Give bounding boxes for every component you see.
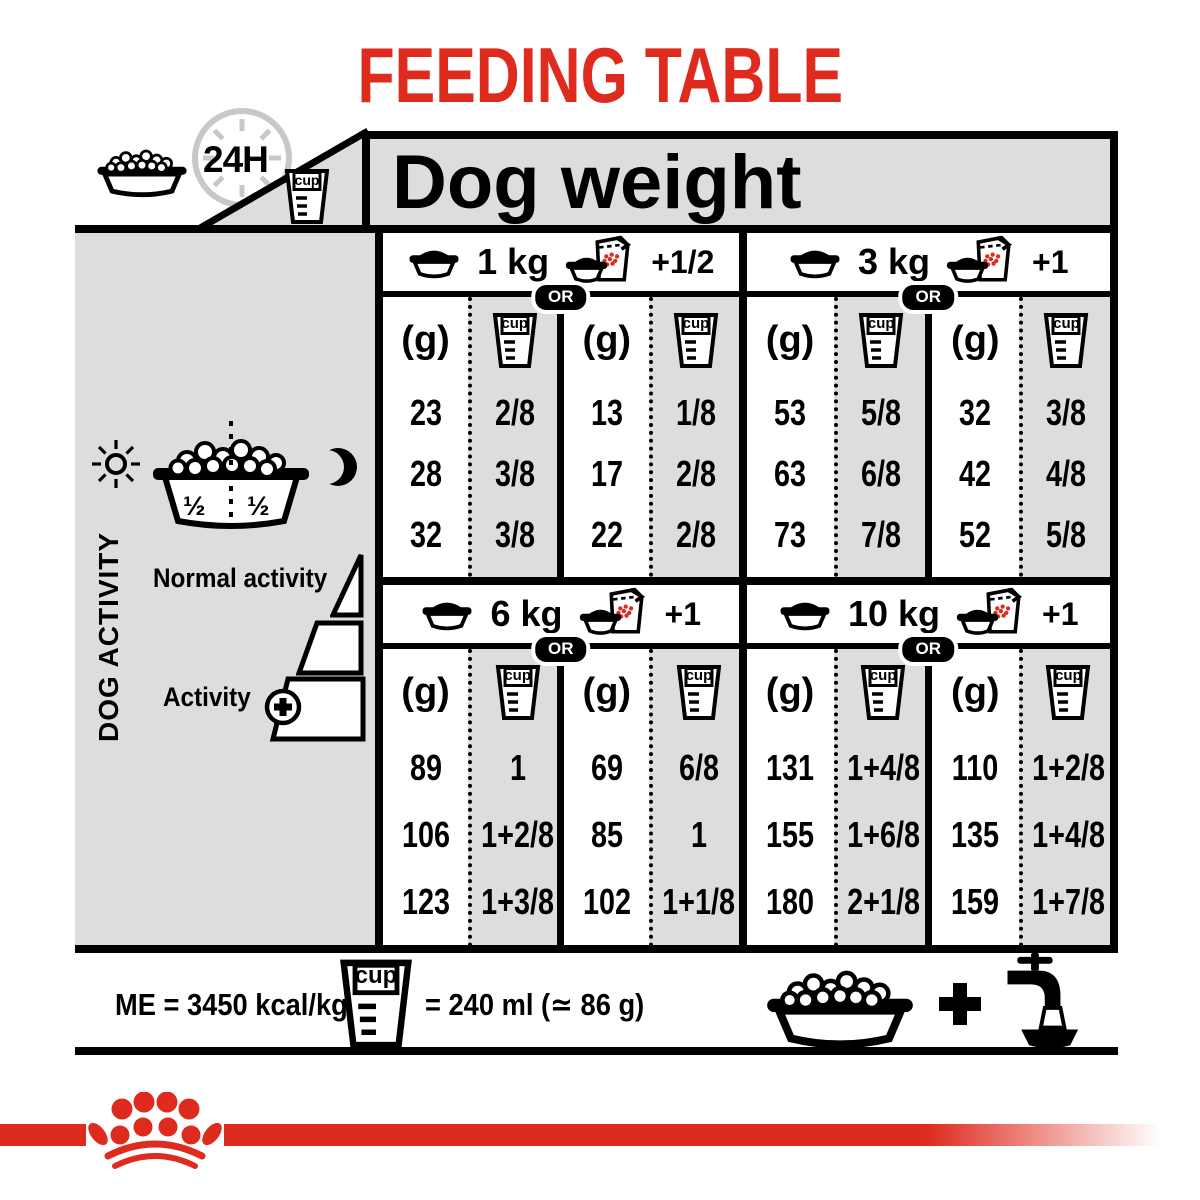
table-cell: 1+2/8 bbox=[1023, 735, 1114, 802]
or-badge: OR bbox=[903, 637, 955, 662]
table-cell: 1/8 bbox=[653, 383, 738, 444]
cup-icon: cup bbox=[1045, 664, 1091, 721]
activity-label: Activity bbox=[163, 682, 251, 713]
dog-weight-title: Dog weight bbox=[392, 139, 802, 226]
table-cell: 89 bbox=[383, 735, 468, 802]
table-cell: 155 bbox=[747, 802, 834, 869]
royal-canin-paw-logo bbox=[84, 1092, 226, 1170]
table-cell: 135 bbox=[932, 802, 1019, 869]
table-cell: 1+1/8 bbox=[653, 868, 744, 935]
grams-header: (g) bbox=[401, 319, 450, 362]
dog-activity-sidebar: ½ ½ DOG ACTIVITY Normal activity Activit… bbox=[75, 233, 375, 945]
or-badge: OR bbox=[903, 285, 955, 310]
or-badge: OR bbox=[535, 637, 587, 662]
grams-header: (g) bbox=[951, 319, 1000, 362]
metabolizable-energy-label: ME = 3450 kcal/kg bbox=[115, 987, 348, 1023]
activity-plus-icon bbox=[262, 686, 304, 728]
table-cell: 2/8 bbox=[653, 504, 738, 565]
table-cell: 1+7/8 bbox=[1023, 868, 1114, 935]
wet-add-label: +1 bbox=[1032, 244, 1068, 281]
dry-bowl-icon bbox=[407, 244, 461, 280]
grams-header: (g) bbox=[583, 319, 632, 362]
table-cell: 73 bbox=[747, 504, 834, 565]
bowl-pouch-icon bbox=[579, 586, 649, 638]
table-cell: 5/8 bbox=[838, 383, 925, 444]
cup-icon: cup bbox=[676, 664, 722, 721]
table-cell: 17 bbox=[564, 444, 649, 505]
grams-header: (g) bbox=[583, 671, 632, 714]
section-10kg: 10 kg +1 OR (g) 131 155 180 cup 1+4/8 bbox=[747, 585, 1111, 947]
section-6kg: 6 kg +1 OR (g) 89 106 123 cup 1 1+2 bbox=[383, 585, 747, 947]
table-cell: 63 bbox=[747, 444, 834, 505]
mixed-feeding-subtable: (g) 69 85 102 cup 6/8 1 1+1/8 bbox=[557, 649, 738, 947]
table-cell: 1+3/8 bbox=[472, 868, 563, 935]
table-cell: 110 bbox=[932, 735, 1019, 802]
cup-icon: cup bbox=[337, 958, 415, 1050]
mixed-feeding-subtable: (g) 13 17 22 cup 1/8 2/8 2/8 bbox=[557, 297, 738, 577]
half-half-bowl-icon bbox=[145, 421, 317, 537]
table-cell: 159 bbox=[932, 868, 1019, 935]
bowl-pouch-icon bbox=[956, 586, 1026, 638]
cup-icon: cup bbox=[284, 168, 330, 225]
table-cell: 106 bbox=[383, 802, 468, 869]
bowl-pouch-icon bbox=[946, 234, 1016, 286]
bowl-pouch-icon bbox=[565, 234, 635, 286]
table-cell: 1+4/8 bbox=[1023, 802, 1114, 869]
table-cell: 3/8 bbox=[472, 504, 557, 565]
grams-header: (g) bbox=[401, 671, 450, 714]
mixed-feeding-subtable: (g) 32 42 52 cup 3/8 4/8 5/8 bbox=[925, 297, 1110, 577]
wet-add-label: +1 bbox=[1042, 596, 1078, 633]
table-cell: 180 bbox=[747, 868, 834, 935]
table-cell: 102 bbox=[564, 868, 649, 935]
moon-icon bbox=[318, 441, 358, 493]
table-cell: 1+2/8 bbox=[472, 802, 563, 869]
weight-label: 6 kg bbox=[490, 593, 562, 635]
table-cell: 5/8 bbox=[1023, 504, 1110, 565]
table-cell: 85 bbox=[564, 802, 649, 869]
table-cell: 13 bbox=[564, 383, 649, 444]
section-3kg-header: 3 kg +1 OR bbox=[747, 233, 1111, 297]
header-wedge bbox=[140, 120, 380, 240]
table-cell: 53 bbox=[747, 383, 834, 444]
footer-info-band: ME = 3450 kcal/kg cup = 240 ml (≃ 86 g) bbox=[75, 945, 1118, 1055]
grams-header: (g) bbox=[951, 671, 1000, 714]
activity-level-1-icon bbox=[330, 552, 364, 618]
activity-level-2-icon bbox=[296, 620, 364, 676]
mixed-feeding-subtable: (g) 110 135 159 cup 1+2/8 1+4/8 1+7/8 bbox=[925, 649, 1110, 947]
table-cell: 7/8 bbox=[838, 504, 925, 565]
table-cell: 42 bbox=[932, 444, 1019, 505]
half-portion-day-label: ½ bbox=[183, 491, 206, 522]
half-portion-night-label: ½ bbox=[247, 491, 270, 522]
plus-icon bbox=[939, 983, 981, 1025]
section-3kg: 3 kg +1 OR (g) 53 63 73 cup 5/8 6/8 bbox=[747, 233, 1111, 585]
section-10kg-header: 10 kg +1 OR bbox=[747, 585, 1111, 649]
cup-icon: cup bbox=[495, 664, 541, 721]
section-6kg-data: (g) 89 106 123 cup 1 1+2/8 1+3/8 (g) bbox=[383, 649, 739, 947]
grams-header: (g) bbox=[766, 319, 815, 362]
feeding-table-infographic: FEEDING TABLE 24H cup Dog weight bbox=[0, 0, 1200, 1200]
table-cell: 131 bbox=[747, 735, 834, 802]
table-cell: 1+6/8 bbox=[838, 802, 929, 869]
table-cell: 22 bbox=[564, 504, 649, 565]
brand-stripe-right bbox=[224, 1124, 1200, 1146]
cup-icon: cup bbox=[492, 312, 538, 369]
dog-weight-header: Dog weight bbox=[362, 131, 1118, 233]
grams-header: (g) bbox=[766, 671, 815, 714]
cup-icon: cup bbox=[860, 664, 906, 721]
cup-icon: cup bbox=[858, 312, 904, 369]
cup-equivalence-label: = 240 ml (≃ 86 g) bbox=[425, 987, 644, 1023]
section-1kg-header: 1 kg +1/2 OR bbox=[383, 233, 739, 297]
dry-only-subtable: (g) 131 155 180 cup 1+4/8 1+6/8 2+1/8 bbox=[747, 649, 925, 947]
table-cell: 32 bbox=[932, 383, 1019, 444]
section-1kg-data: (g) 23 28 32 cup 2/8 3/8 3/8 (g) bbox=[383, 297, 739, 577]
table-cell: 52 bbox=[932, 504, 1019, 565]
table-cell: 6/8 bbox=[838, 444, 925, 505]
normal-activity-label: Normal activity bbox=[153, 563, 327, 594]
table-cell: 2/8 bbox=[472, 383, 557, 444]
table-cell: 2+1/8 bbox=[838, 868, 929, 935]
cup-icon: cup bbox=[673, 312, 719, 369]
weight-label: 10 kg bbox=[848, 593, 940, 635]
cup-icon: cup bbox=[1043, 312, 1089, 369]
dry-only-subtable: (g) 53 63 73 cup 5/8 6/8 7/8 bbox=[747, 297, 925, 577]
table-cell: 4/8 bbox=[1023, 444, 1110, 505]
feeding-table: 1 kg +1/2 OR (g) 23 28 32 cup 2/8 3 bbox=[375, 225, 1118, 955]
table-cell: 69 bbox=[564, 735, 649, 802]
section-6kg-header: 6 kg +1 OR bbox=[383, 585, 739, 649]
weight-label: 3 kg bbox=[858, 241, 930, 283]
table-cell: 23 bbox=[383, 383, 468, 444]
table-cell: 1 bbox=[653, 802, 744, 869]
section-1kg: 1 kg +1/2 OR (g) 23 28 32 cup 2/8 3 bbox=[383, 233, 747, 585]
dry-bowl-icon bbox=[420, 596, 474, 632]
section-3kg-data: (g) 53 63 73 cup 5/8 6/8 7/8 (g) bbox=[747, 297, 1111, 577]
table-cell: 1 bbox=[472, 735, 563, 802]
brand-stripe-left bbox=[0, 1124, 86, 1146]
table-cell: 2/8 bbox=[653, 444, 738, 505]
wet-add-label: +1/2 bbox=[651, 244, 714, 281]
table-cell: 3/8 bbox=[1023, 383, 1110, 444]
sun-icon bbox=[88, 436, 144, 492]
water-tap-icon bbox=[987, 953, 1079, 1055]
table-cell: 3/8 bbox=[472, 444, 557, 505]
table-cell: 1+4/8 bbox=[838, 735, 929, 802]
dry-bowl-icon bbox=[788, 244, 842, 280]
page-title: FEEDING TABLE bbox=[0, 30, 1200, 121]
table-cell: 123 bbox=[383, 868, 468, 935]
kibble-bowl-icon bbox=[747, 955, 933, 1053]
weight-label: 1 kg bbox=[477, 241, 549, 283]
table-cell: 28 bbox=[383, 444, 468, 505]
wet-add-label: +1 bbox=[665, 596, 701, 633]
dry-only-subtable: (g) 89 106 123 cup 1 1+2/8 1+3/8 bbox=[383, 649, 557, 947]
table-cell: 32 bbox=[383, 504, 468, 565]
section-10kg-data: (g) 131 155 180 cup 1+4/8 1+6/8 2+1/8 (g… bbox=[747, 649, 1111, 947]
dry-only-subtable: (g) 23 28 32 cup 2/8 3/8 3/8 bbox=[383, 297, 557, 577]
dog-activity-label: DOG ACTIVITY bbox=[93, 548, 125, 742]
table-cell: 6/8 bbox=[653, 735, 744, 802]
or-badge: OR bbox=[535, 285, 587, 310]
dry-bowl-icon bbox=[778, 596, 832, 632]
